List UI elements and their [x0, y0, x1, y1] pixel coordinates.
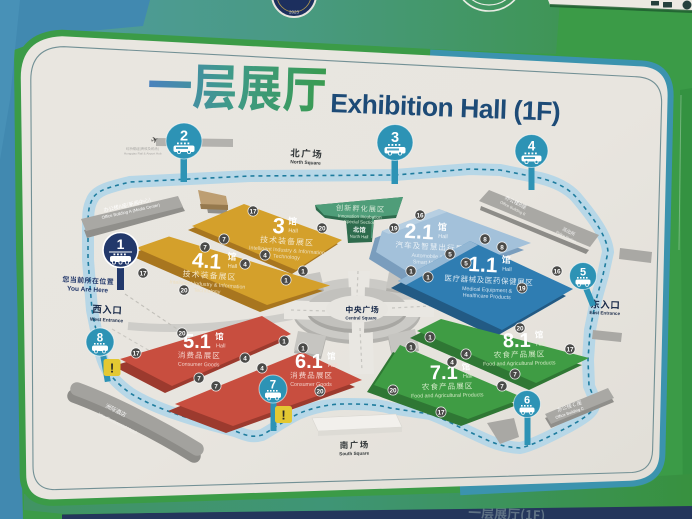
svg-text:16: 16 — [416, 212, 424, 219]
svg-text:4: 4 — [243, 261, 247, 268]
svg-text:1: 1 — [301, 345, 305, 352]
svg-text:Hall: Hall — [288, 228, 298, 235]
svg-text:Hall: Hall — [228, 263, 238, 270]
svg-text:20: 20 — [316, 388, 324, 395]
svg-text:6.1: 6.1 — [295, 351, 323, 373]
svg-text:3: 3 — [391, 130, 399, 146]
svg-text:1: 1 — [426, 274, 430, 281]
svg-text:4: 4 — [450, 359, 454, 366]
svg-text:2.1: 2.1 — [404, 220, 435, 245]
svg-text:20: 20 — [178, 330, 186, 337]
svg-text:7: 7 — [513, 371, 517, 378]
svg-text:Hongqiao Rail & Airport Hub: Hongqiao Rail & Airport Hub — [124, 152, 162, 156]
svg-text:7: 7 — [214, 383, 218, 390]
svg-text:1: 1 — [409, 268, 413, 275]
svg-text:4.1: 4.1 — [191, 249, 222, 274]
svg-text:Hall: Hall — [438, 234, 448, 241]
svg-text:Food and Agricultural Products: Food and Agricultural Products — [483, 360, 556, 367]
svg-text:1: 1 — [409, 344, 413, 351]
svg-text:7: 7 — [500, 383, 504, 390]
svg-text:7: 7 — [222, 236, 226, 243]
svg-text:Consumer Goods: Consumer Goods — [178, 362, 220, 369]
svg-text:!: ! — [281, 408, 285, 423]
svg-text:17: 17 — [139, 270, 147, 277]
svg-text:Food and Agricultural Products: Food and Agricultural Products — [411, 392, 484, 399]
svg-text:North Hall: North Hall — [350, 234, 369, 240]
svg-text:8.1: 8.1 — [503, 330, 531, 352]
svg-text:17: 17 — [249, 208, 257, 215]
svg-text:7: 7 — [270, 380, 276, 392]
svg-text:2023: 2023 — [289, 10, 300, 15]
svg-text:South Square: South Square — [339, 451, 369, 457]
svg-text:20: 20 — [389, 387, 397, 394]
svg-text:17: 17 — [132, 350, 140, 357]
svg-text:Hall: Hall — [502, 267, 512, 273]
svg-text:7: 7 — [197, 375, 201, 382]
svg-text:1.1: 1.1 — [468, 253, 499, 278]
svg-text:1: 1 — [117, 236, 125, 252]
svg-text:Hall: Hall — [216, 343, 226, 349]
svg-text:1: 1 — [282, 338, 286, 345]
svg-text:4: 4 — [528, 139, 536, 154]
svg-text:Hall: Hall — [536, 342, 546, 348]
svg-text:3: 3 — [272, 213, 286, 239]
svg-text:17: 17 — [437, 409, 445, 416]
svg-text:4: 4 — [263, 252, 267, 259]
svg-text:Central Square: Central Square — [345, 316, 377, 321]
svg-text:19: 19 — [518, 285, 526, 292]
svg-text:5: 5 — [464, 260, 468, 267]
svg-text:19: 19 — [390, 225, 398, 232]
svg-text:4: 4 — [243, 355, 247, 362]
svg-text:20: 20 — [318, 225, 326, 232]
svg-text:1: 1 — [301, 268, 305, 275]
svg-text:4: 4 — [464, 351, 468, 358]
svg-text:1: 1 — [284, 277, 288, 284]
svg-text:4: 4 — [260, 365, 264, 372]
svg-text:5: 5 — [580, 267, 586, 279]
svg-text:17: 17 — [566, 346, 574, 353]
svg-text:16: 16 — [553, 268, 561, 275]
svg-text:1: 1 — [428, 334, 432, 341]
svg-text:2: 2 — [180, 129, 188, 145]
svg-text:7: 7 — [203, 244, 207, 251]
svg-text:20: 20 — [180, 287, 188, 294]
svg-text:6: 6 — [524, 395, 530, 407]
svg-text:20: 20 — [516, 325, 524, 332]
svg-text:8: 8 — [483, 236, 487, 243]
svg-text:Hall: Hall — [463, 374, 473, 380]
svg-text:8: 8 — [500, 244, 504, 251]
svg-text:!: ! — [110, 361, 114, 376]
svg-text:8: 8 — [97, 333, 104, 345]
svg-text:Consumer Goods: Consumer Goods — [290, 382, 332, 388]
svg-text:Hall: Hall — [328, 363, 337, 369]
svg-text:5: 5 — [448, 251, 452, 258]
